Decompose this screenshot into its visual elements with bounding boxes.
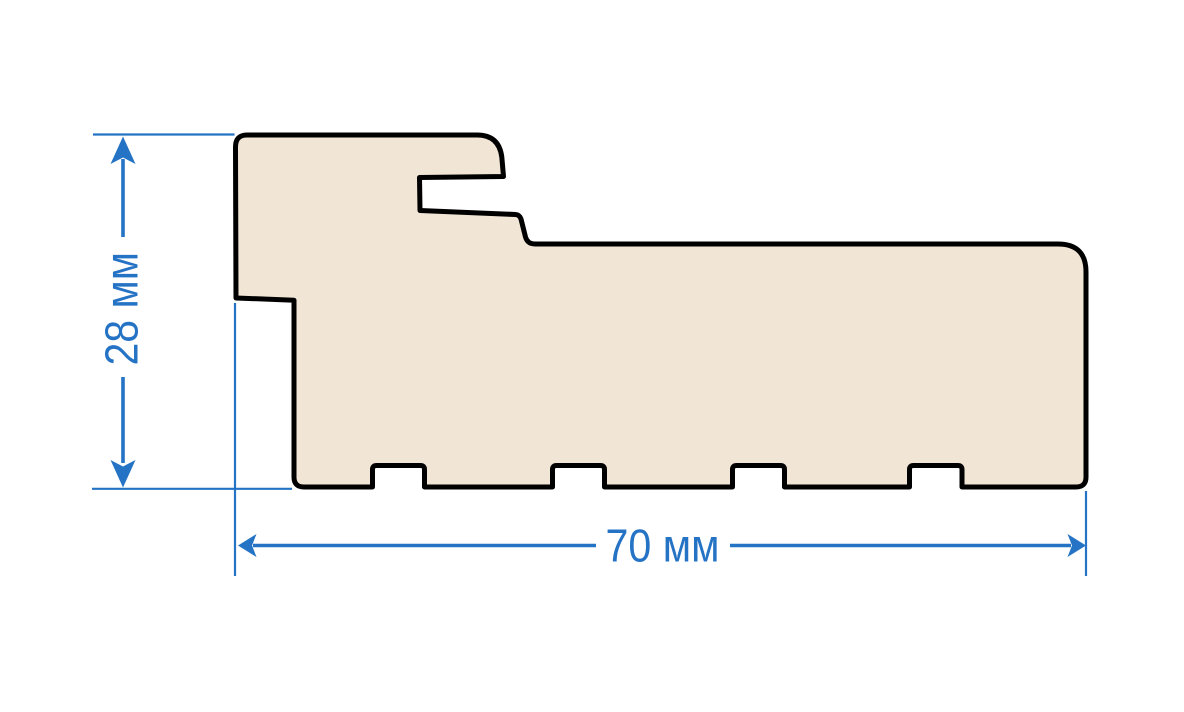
svg-text:70 мм: 70 мм xyxy=(606,520,720,572)
svg-text:28 мм: 28 мм xyxy=(95,252,147,366)
